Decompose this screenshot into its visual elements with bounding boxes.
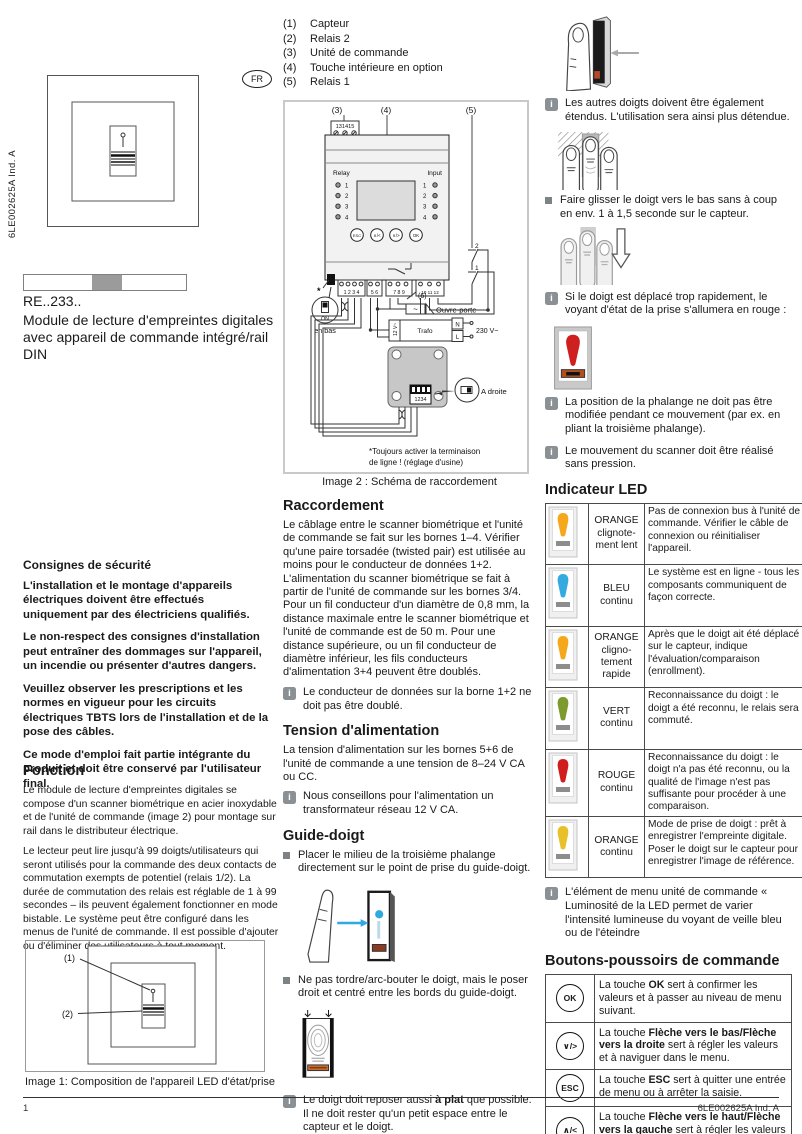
product-code: RE..233..: [23, 293, 81, 309]
scanner-unit: 1234: [388, 347, 447, 407]
info-note: L'élément de menu unité de commande « Lu…: [545, 886, 792, 941]
input-label: Input: [427, 170, 442, 177]
info-icon: [545, 397, 558, 410]
diagram-label-6: (6): [418, 293, 427, 300]
button-row: OK La touche OK sert à confirmer les val…: [546, 974, 792, 1022]
image2-caption: Image 2 : Schéma de raccordement: [283, 476, 536, 488]
brand-bar: [23, 274, 187, 291]
product-title: Module de lecture d'empreintes digitales…: [23, 312, 275, 363]
info-icon: [545, 887, 558, 900]
info-note: Les autres doigts doivent être également…: [545, 97, 792, 124]
svg-text:~: ~: [413, 305, 418, 314]
led-row: ORANGE cligno-tement rapide Après que le…: [546, 626, 802, 687]
info-icon: [545, 446, 558, 459]
svg-text:2: 2: [475, 243, 479, 250]
svg-text:ESC: ESC: [353, 233, 361, 238]
image1-caption: Image 1: Composition de l'appareil LED d…: [25, 1076, 275, 1088]
right-column: Les autres doigts doivent être également…: [545, 15, 792, 1134]
legend-item: (2)Relais 2: [283, 32, 533, 47]
scanner-led-icon: [548, 819, 578, 871]
footer-page-number: 1: [23, 1103, 28, 1114]
down-right-button-icon: ∨/>: [556, 1032, 584, 1060]
down-arrow-icon: [612, 228, 629, 267]
bullet-item: Placer le milieu de la troisième phalang…: [283, 849, 536, 876]
svg-text:12 V~: 12 V~: [393, 323, 399, 336]
info-note: Le doigt doit reposer aussi à plat que p…: [283, 1094, 536, 1134]
scanner-led-icon: [548, 690, 578, 742]
wiring-diagram-figure: (3) (4) (5) 131415 Relay Input: [283, 100, 529, 474]
finger-centered-illustration: [297, 1009, 343, 1081]
bullet-square-icon: [283, 977, 290, 984]
info-note: Le conducteur de données sur la borne 1+…: [283, 686, 536, 713]
scanner-dip-numbers: 1234: [415, 397, 427, 403]
transformer: 12 V~ Trafo N L 230 V~: [389, 318, 498, 342]
middle-column: Image 2 : Schéma de raccordement Raccord…: [283, 476, 536, 1134]
fonction-heading: Fonction: [23, 763, 279, 779]
language-badge: FR: [242, 70, 272, 88]
info-icon: [545, 98, 558, 111]
svg-text:1: 1: [475, 265, 479, 272]
diagram-label-4: (4): [381, 105, 392, 115]
finger-on-scanner-illustration: [553, 15, 645, 91]
wiring-diagram: (3) (4) (5) 131415 Relay Input: [285, 102, 527, 470]
bullet-item: Faire glisser le doigt vers le bas sans …: [545, 194, 792, 221]
svg-text:∨/>: ∨/>: [392, 233, 400, 238]
svg-text:∧/<: ∧/<: [373, 233, 381, 238]
led-row: ORANGE continu Mode de prise de doigt : …: [546, 816, 802, 877]
tension-body: La tension d'alimentation sur les bornes…: [283, 744, 536, 784]
relay-label: Relay: [333, 170, 351, 177]
led-row: VERT continu Reconnaissance du doigt : l…: [546, 688, 802, 749]
info-note: Le mouvement du scanner doit être réalis…: [545, 445, 792, 472]
image1-illustration: (1) (2): [26, 941, 264, 1069]
top-terminal-numbers: 131415: [336, 124, 355, 130]
scanner-led-icon: [548, 752, 578, 804]
info-icon: [283, 791, 296, 804]
svg-text:en bas: en bas: [314, 326, 336, 335]
legend-item: (5)Relais 1: [283, 75, 533, 90]
grip-point: [375, 910, 383, 918]
svg-text:5 6: 5 6: [371, 290, 378, 296]
scanner-led-icon: [548, 567, 578, 619]
info-note: Nous conseillons pour l'alimentation un …: [283, 790, 536, 817]
image1-label-1: (1): [64, 953, 75, 963]
esc-button-icon: ESC: [556, 1074, 584, 1102]
parts-legend: (1)Capteur (2)Relais 2 (3)Unité de comma…: [283, 17, 533, 90]
bullet-square-icon: [545, 197, 552, 204]
buttons-heading: Boutons-poussoirs de commande: [545, 953, 792, 969]
svg-text:Trafo: Trafo: [417, 328, 432, 335]
sensor-guide-line: [377, 921, 380, 939]
footer-doc-ref: 6LE002625A Ind. A: [698, 1103, 779, 1114]
up-left-button-icon: ∧/<: [556, 1117, 584, 1134]
svg-text:1 2 3 4: 1 2 3 4: [344, 290, 360, 296]
info-icon: [283, 687, 296, 700]
lcd-display: [357, 181, 415, 220]
door-opener-symbol: ~ Ouvre-porte: [406, 304, 477, 315]
info-icon: [545, 292, 558, 305]
raccordement-body: Le câblage entre le scanner biométrique …: [283, 519, 536, 680]
mains-voltage-label: 230 V~: [476, 328, 498, 335]
svg-text:7 8 9: 7 8 9: [393, 290, 405, 296]
safety-heading: Consignes de sécurité: [23, 558, 271, 572]
bullet-item: Ne pas tordre/arc-bouter le doigt, mais …: [283, 974, 536, 1001]
guide-doigt-heading: Guide-doigt: [283, 828, 536, 844]
pointer-arrow-icon: [610, 50, 618, 57]
fonction-paragraph: Le module de lecture d'empreintes digita…: [23, 784, 279, 838]
brand-bar-segment: [92, 275, 122, 290]
raccordement-heading: Raccordement: [283, 498, 536, 514]
led-row: ORANGE clignote-ment lent Pas de connexi…: [546, 503, 802, 564]
legend-item: (3)Unité de commande: [283, 46, 533, 61]
led-row: BLEU continu Le système est en ligne - t…: [546, 565, 802, 626]
bottom-terminals: 1 2 3 4 5 6 7 8 9 10 11 12: [338, 280, 444, 296]
slide-down-illustration: [553, 227, 631, 285]
safety-paragraph: L'installation et le montage d'appareils…: [23, 579, 271, 622]
manual-page: 6LE002625A Ind. A FR RE..233.. Module de…: [0, 0, 802, 1134]
vertical-doc-ref: 6LE002625A Ind. A: [7, 150, 18, 238]
image1-label-2: (2): [62, 1009, 73, 1019]
info-note: La position de la phalange ne doit pas ê…: [545, 396, 792, 437]
led-indicator-heading: Indicateur LED: [545, 482, 792, 498]
a-droite-label: A droite: [481, 387, 507, 396]
asterisk-mark: *: [317, 286, 321, 296]
safety-paragraph: Veuillez observer les prescriptions et l…: [23, 682, 271, 740]
button-row: ESC La touche ESC sert à quitter une ent…: [546, 1070, 792, 1107]
device-front-illustration: [47, 75, 199, 227]
button-row: ∨/> La touche Flèche vers le bas/Flèche …: [546, 1022, 792, 1070]
tension-heading: Tension d'alimentation: [283, 723, 536, 739]
legend-item: (4)Touche intérieure en option: [283, 61, 533, 76]
ok-button-icon: OK: [556, 984, 584, 1012]
finger-placement-illustration: [297, 884, 397, 964]
svg-text:OK: OK: [413, 233, 419, 238]
fonction-section: Fonction Le module de lecture d'empreint…: [23, 763, 279, 960]
led-row: ROUGE continu Reconnaissance du doigt : …: [546, 749, 802, 816]
led-indicator-table: ORANGE clignote-ment lent Pas de connexi…: [545, 503, 802, 878]
footer-divider: [23, 1097, 779, 1098]
scanner-led-icon: [548, 629, 578, 681]
bullet-square-icon: [283, 852, 290, 859]
legend-item: (1)Capteur: [283, 17, 533, 32]
three-fingers-illustration: [553, 132, 631, 190]
scanner-led-icon: [548, 506, 578, 558]
fonction-paragraph: Le lecteur peut lire jusqu'à 99 doigts/u…: [23, 845, 279, 953]
svg-text:N: N: [455, 323, 459, 329]
arrow-icon: [361, 919, 369, 927]
diagram-label-5: (5): [466, 105, 477, 115]
diagram-label-3: (3): [332, 105, 343, 115]
info-note: Si le doigt est déplacé trop rapidement,…: [545, 291, 792, 318]
diagram-footnote: *Toujours activer la terminaison: [369, 447, 480, 456]
image1-figure: (1) (2): [25, 940, 265, 1072]
svg-text:de ligne ! (réglage d'usine): de ligne ! (réglage d'usine): [369, 458, 463, 467]
safety-paragraph: Le non-respect des consignes d'installat…: [23, 630, 271, 673]
bus-terminator: [327, 274, 335, 285]
red-indicator-illustration: [553, 326, 593, 390]
